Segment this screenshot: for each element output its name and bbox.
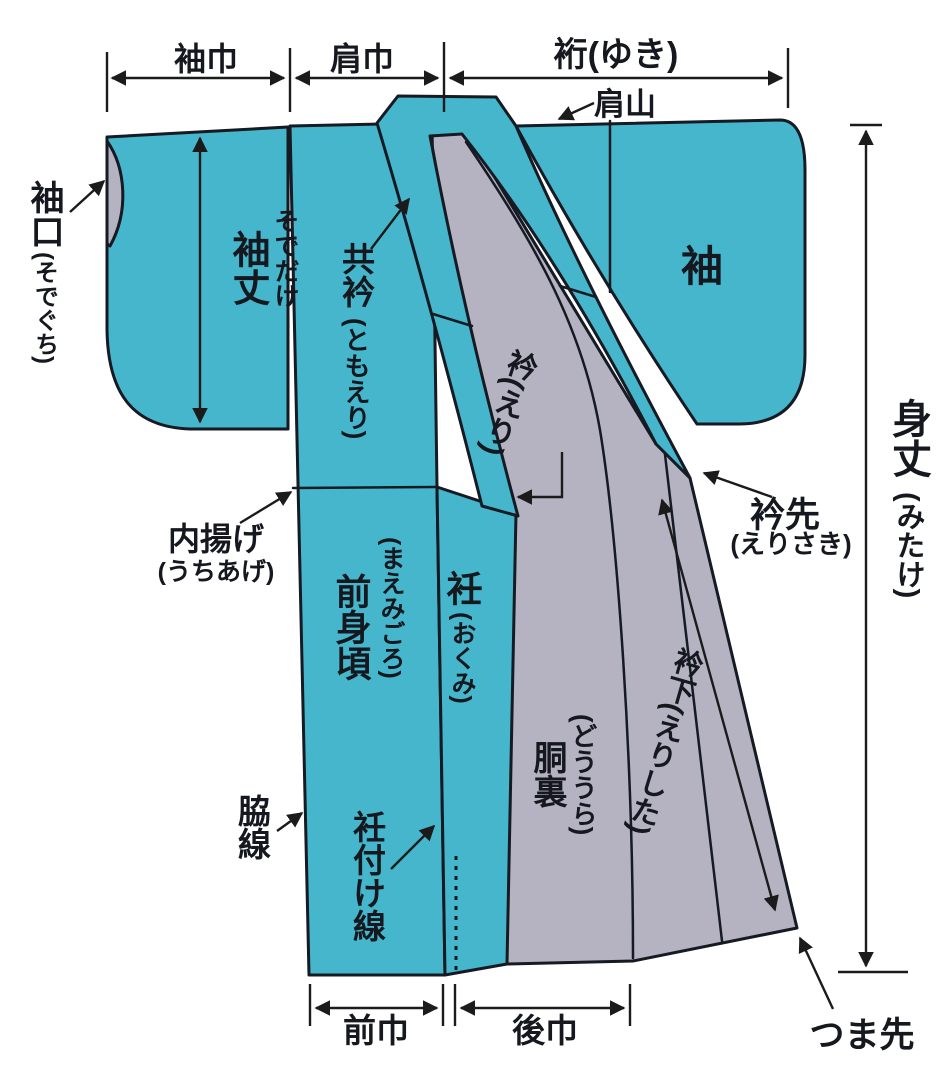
- label-uchiage-reading: (うちあげ): [158, 558, 275, 586]
- label-sode-take-reading: そでだけ: [271, 208, 299, 308]
- label-sode-haba: 袖巾: [174, 41, 238, 77]
- label-mae-haba: 前巾: [343, 1012, 409, 1049]
- kimono-diagram: 袖巾 肩巾 裄(ゆき) 肩山 袖口 (そでぐち) 袖丈 そでだけ 共衿 (ともえ…: [0, 0, 950, 1080]
- uchiage-seam-line: [293, 487, 436, 488]
- label-waki-sen: 脇線: [234, 794, 272, 860]
- label-kata-haba: 肩巾: [330, 41, 394, 77]
- label-kata-yama: 肩山: [594, 87, 656, 122]
- label-sode: 袖: [681, 243, 723, 290]
- label-dou-ura-reading: (どううら): [568, 714, 598, 835]
- sode-guchi-pointer: [70, 181, 104, 212]
- label-sode-guchi: 袖口: [25, 180, 64, 248]
- label-okumi: 衽: [442, 570, 483, 606]
- waki-sen-pointer: [277, 813, 302, 831]
- tsuma-saki-pointer: [800, 938, 833, 1009]
- label-tsuma-saki: つま先: [809, 1016, 914, 1055]
- label-mae-migoro: 前身頃: [331, 573, 372, 681]
- label-dou-ura: 胴裏: [528, 740, 567, 809]
- label-tomoeri: 共衿: [338, 242, 376, 308]
- kimono-diagram-canvas: 袖巾 肩巾 裄(ゆき) 肩山 袖口 (そでぐち) 袖丈 そでだけ 共衿 (ともえ…: [0, 0, 950, 1080]
- label-mae-migoro-reading: (まえみごろ): [377, 537, 405, 679]
- label-mitake: 身丈: [886, 398, 932, 478]
- uchiage-pointer: [240, 492, 291, 523]
- label-okumi-reading: (おくみ): [448, 612, 476, 704]
- label-sode-take: 袖丈: [226, 230, 270, 306]
- label-tomoeri-reading: (ともえり): [341, 318, 371, 439]
- okumi-panel: [437, 487, 516, 975]
- label-sode-guchi-reading: (そでぐち): [31, 252, 58, 364]
- label-yuki: 裄(ゆき): [554, 36, 679, 74]
- label-eri-saki-reading: (えりさき): [730, 529, 851, 559]
- label-okumi-tsuke-sen: 衽付け線: [349, 810, 387, 942]
- label-uchiage: 内揚げ: [168, 521, 264, 557]
- kata-yama-pointer: [559, 103, 594, 119]
- label-mitake-reading: (みたけ): [892, 492, 925, 598]
- label-ushiro-haba: 後巾: [512, 1012, 578, 1049]
- eri-saki-pointer: [704, 473, 772, 497]
